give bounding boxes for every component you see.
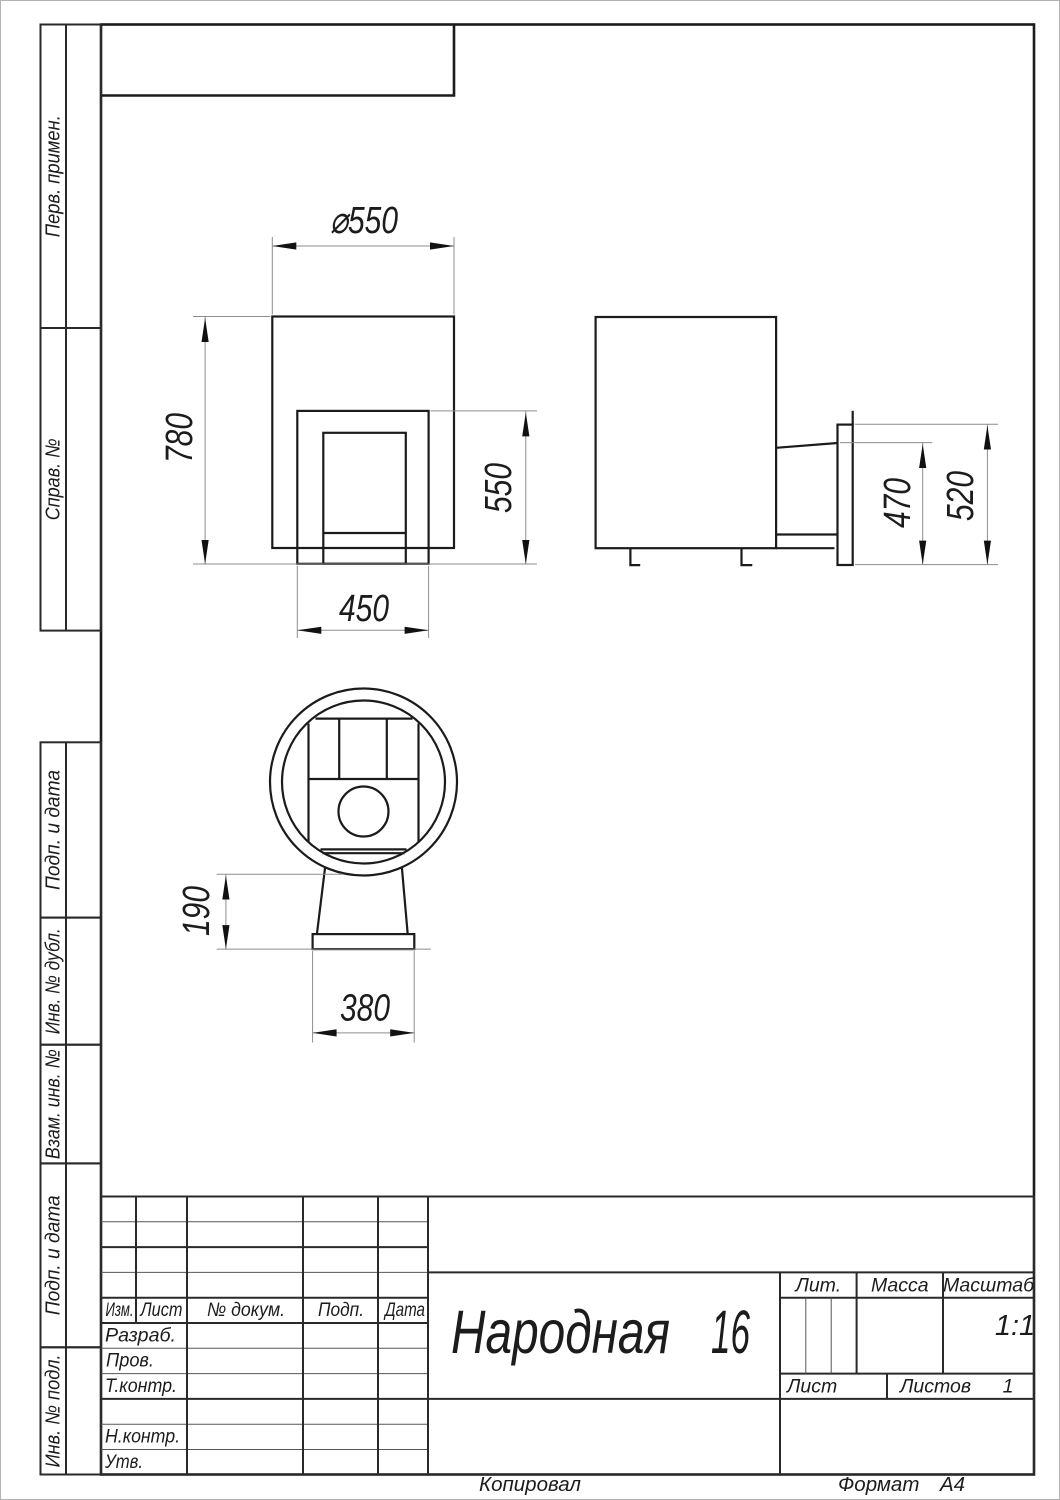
svg-text:Копировал: Копировал — [479, 1473, 581, 1496]
svg-text:520: 520 — [940, 471, 982, 521]
svg-text:Справ. №: Справ. № — [42, 438, 65, 520]
svg-text:Утв.: Утв. — [104, 1451, 143, 1473]
svg-text:470: 470 — [877, 478, 919, 528]
svg-text:Т.контр.: Т.контр. — [105, 1375, 177, 1397]
svg-text:Подп.: Подп. — [318, 1299, 364, 1321]
svg-text:Лист: Лист — [139, 1299, 183, 1321]
svg-text:Народная: Народная — [451, 1298, 670, 1366]
svg-text:Листов: Листов — [898, 1376, 971, 1398]
svg-text:Лист: Лист — [785, 1376, 837, 1398]
svg-text:⌀550: ⌀550 — [330, 200, 398, 242]
svg-text:380: 380 — [340, 988, 390, 1030]
svg-text:Формат: Формат — [838, 1473, 919, 1496]
svg-text:Перв. примен.: Перв. примен. — [42, 115, 65, 237]
svg-text:Дата: Дата — [383, 1299, 425, 1321]
svg-text:Пров.: Пров. — [106, 1350, 154, 1372]
svg-text:190: 190 — [176, 886, 218, 936]
svg-text:1:1: 1:1 — [995, 1310, 1035, 1342]
svg-text:780: 780 — [159, 413, 201, 463]
svg-text:Изм.: Изм. — [106, 1299, 134, 1321]
svg-text:Н.контр.: Н.контр. — [105, 1426, 180, 1448]
svg-text:1: 1 — [1003, 1376, 1014, 1398]
svg-text:450: 450 — [339, 588, 389, 630]
svg-text:Инв. № подл.: Инв. № подл. — [42, 1354, 65, 1467]
svg-text:№ докум.: № докум. — [207, 1299, 285, 1321]
svg-text:Лит.: Лит. — [793, 1274, 841, 1296]
svg-text:550: 550 — [478, 463, 520, 513]
svg-text:Масштаб: Масштаб — [943, 1274, 1035, 1296]
svg-text:Разраб.: Разраб. — [105, 1324, 176, 1346]
svg-text:16: 16 — [711, 1298, 750, 1366]
svg-text:Взам. инв. №: Взам. инв. № — [42, 1049, 65, 1159]
svg-text:Масса: Масса — [871, 1274, 929, 1296]
svg-text:Подп. и дата: Подп. и дата — [42, 770, 65, 890]
svg-text:Подп. и дата: Подп. и дата — [42, 1195, 65, 1315]
svg-text:Инв. № дубл.: Инв. № дубл. — [42, 928, 65, 1034]
svg-text:А4: А4 — [938, 1473, 965, 1496]
